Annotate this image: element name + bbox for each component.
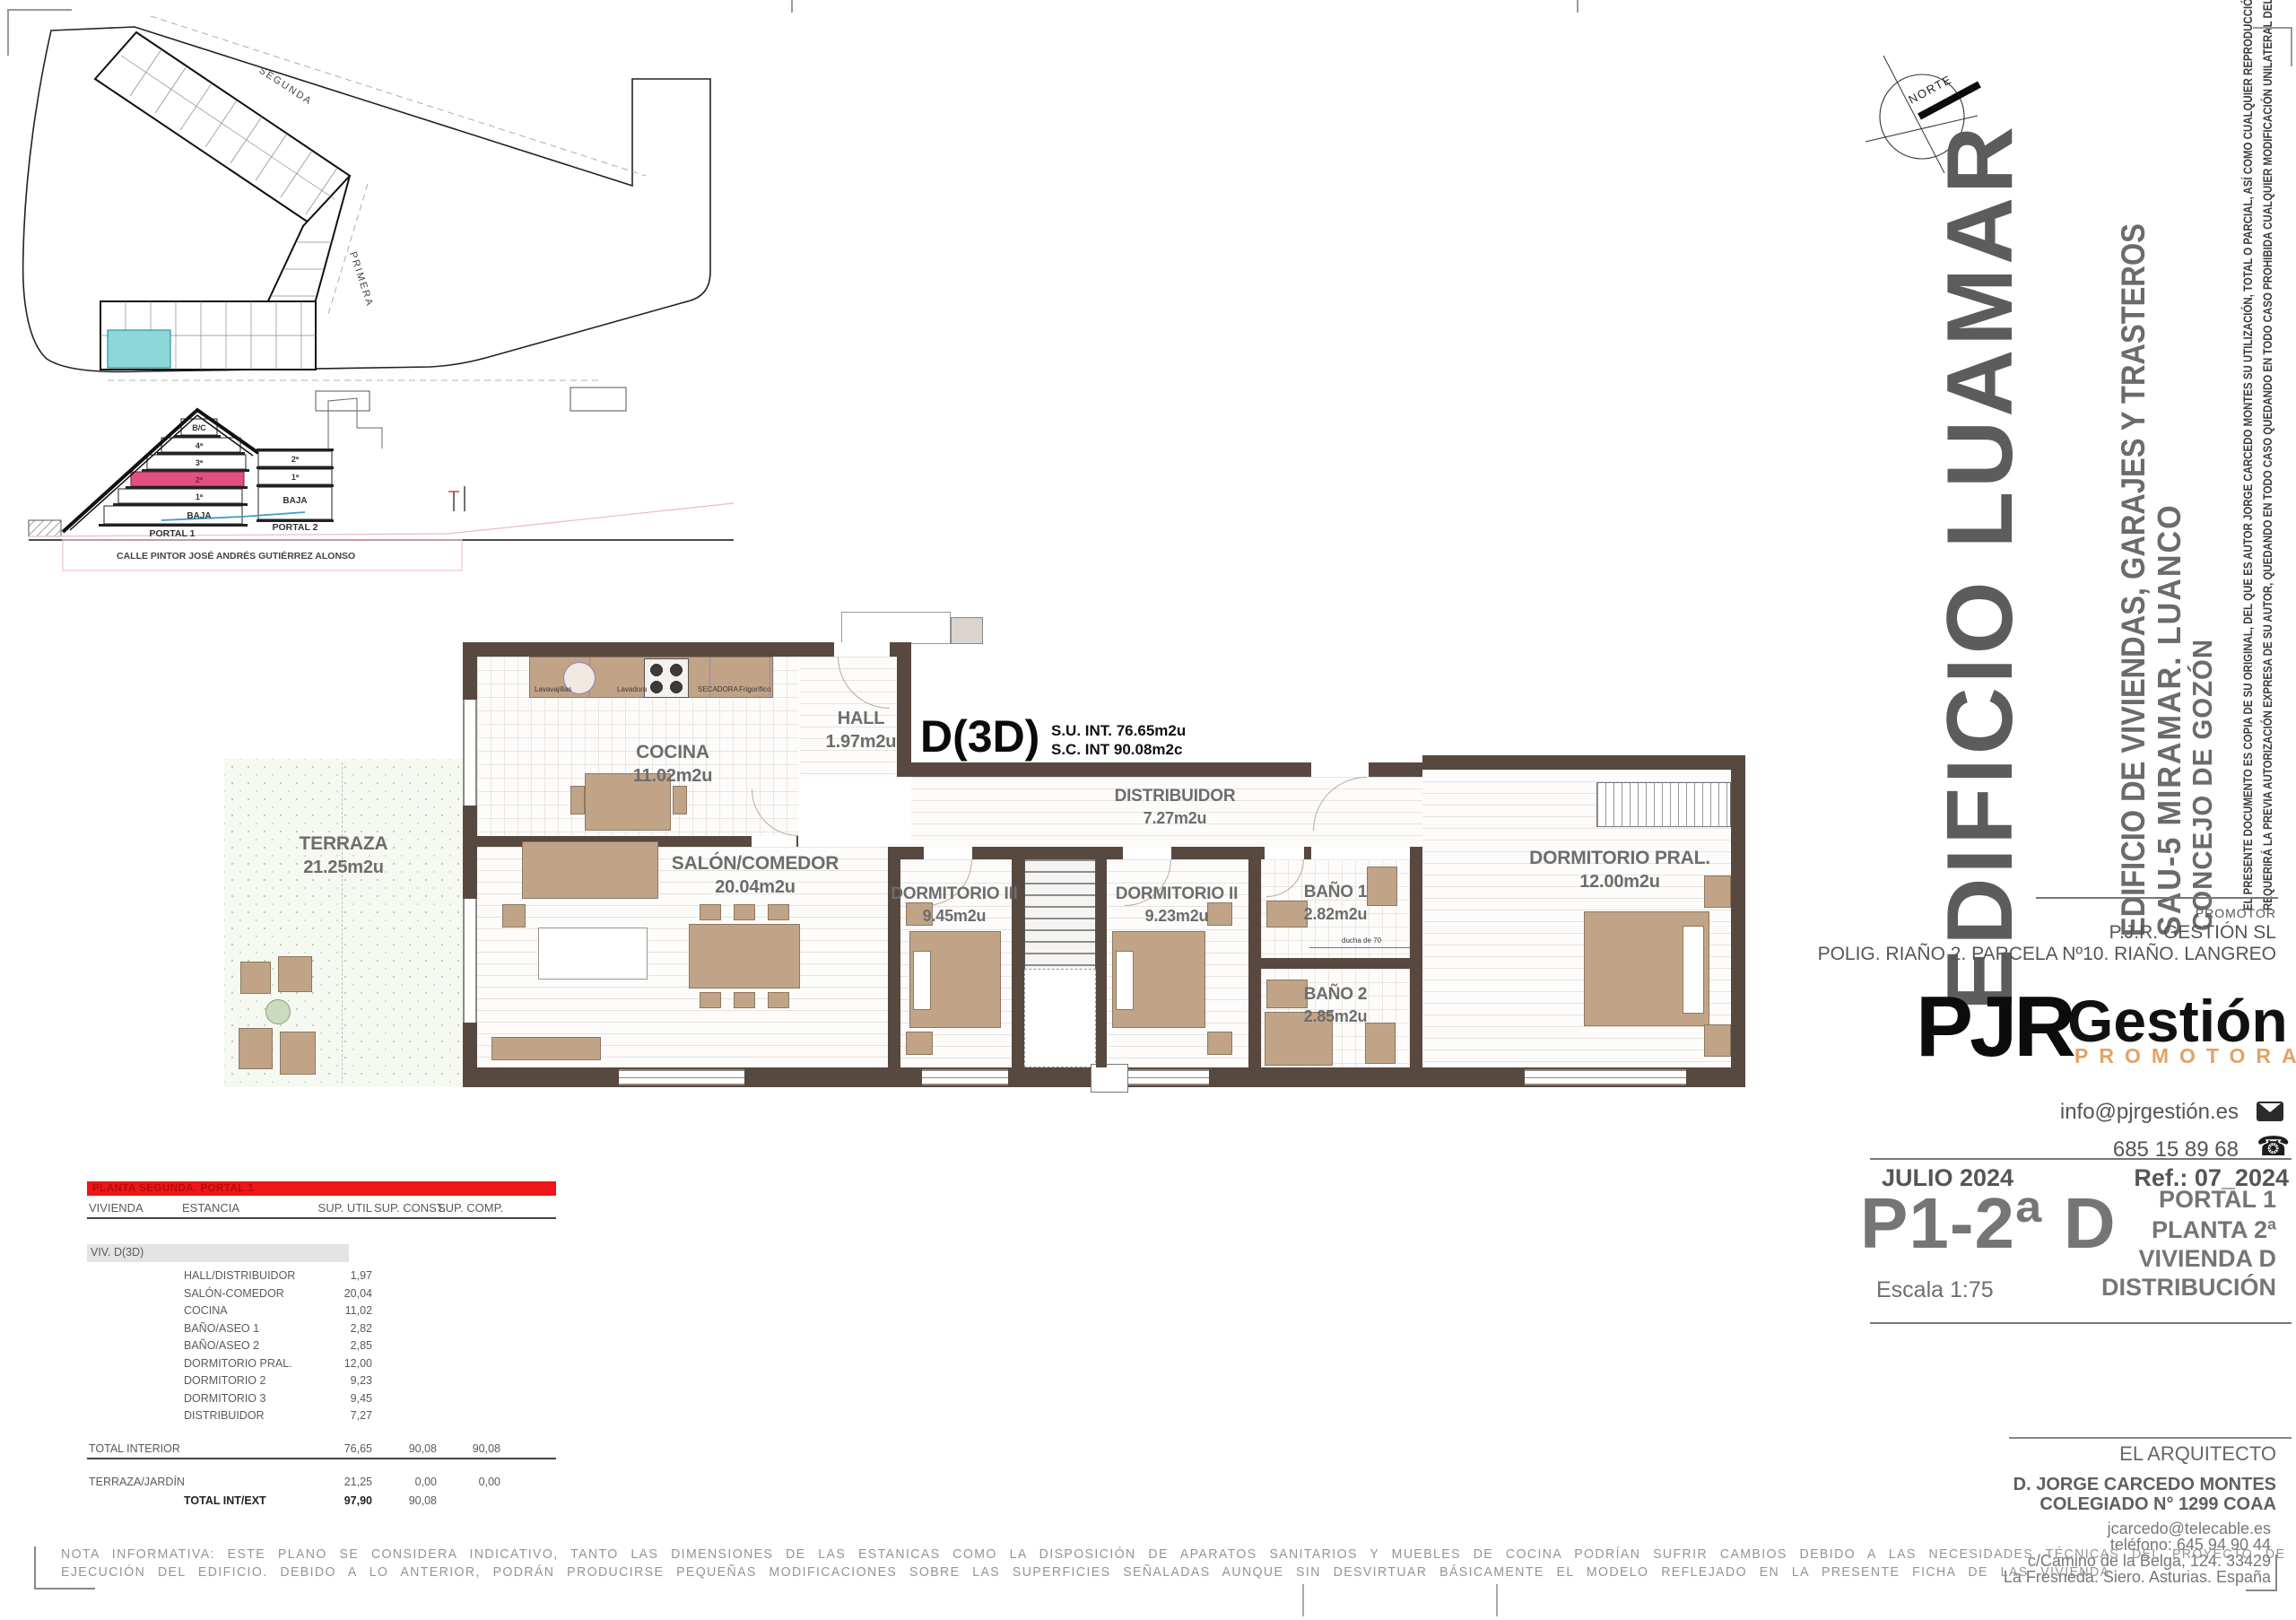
room-area: 20.04m2u bbox=[672, 875, 839, 899]
room-name: COCINA bbox=[636, 742, 709, 762]
row-estancia: DORMITORIO 3 bbox=[184, 1392, 265, 1405]
room-name: SALÓN/COMEDOR bbox=[672, 853, 839, 874]
wall bbox=[463, 1023, 477, 1087]
wall bbox=[1248, 859, 1261, 1067]
room-label-dormpral: DORMITORIO PRAL. 12.00m2u bbox=[1529, 847, 1710, 893]
sheet-scale: Escala 1:75 bbox=[1876, 1277, 1994, 1303]
shaft bbox=[951, 617, 983, 644]
toilet bbox=[1367, 867, 1397, 906]
chair bbox=[768, 904, 789, 920]
row-estancia: SALÓN-COMEDOR bbox=[184, 1287, 284, 1300]
row-util: 2,82 bbox=[309, 1322, 372, 1335]
terraza-row-util: 21,25 bbox=[309, 1476, 372, 1488]
total-interior-const: 90,08 bbox=[374, 1442, 437, 1455]
chair bbox=[700, 992, 721, 1008]
section-label-portal2: PORTAL 2 bbox=[273, 522, 318, 533]
section-label-2: 2ª bbox=[196, 475, 204, 484]
window bbox=[922, 1069, 1008, 1085]
row-util: 1,97 bbox=[309, 1269, 372, 1282]
total-interior-comp: 90,08 bbox=[438, 1442, 500, 1455]
appliance-label: Lavadora bbox=[617, 685, 647, 693]
terraza-planter bbox=[265, 999, 291, 1024]
row-util: 11,02 bbox=[309, 1304, 372, 1317]
room-label-dorm3: DORMITORIO III 9.45m2u bbox=[891, 883, 1017, 928]
email-icon bbox=[2257, 1102, 2283, 1121]
kitchen-door-gap bbox=[752, 836, 796, 847]
row-util: 12,00 bbox=[309, 1357, 372, 1370]
terraza-chair bbox=[280, 1032, 316, 1075]
appliance-label: Lavavajillas bbox=[535, 685, 571, 693]
room-label-salon: SALÓN/COMEDOR 20.04m2u bbox=[672, 852, 839, 899]
dining-table bbox=[689, 924, 800, 989]
room-name: BAÑO 2 bbox=[1304, 985, 1368, 1004]
row-estancia: HALL/DISTRIBUIDOR bbox=[184, 1269, 295, 1282]
total-const: 90,08 bbox=[374, 1494, 437, 1507]
promotor-email: info@pjrgestión.es bbox=[2060, 1100, 2239, 1125]
chair bbox=[734, 992, 755, 1008]
window bbox=[619, 1069, 744, 1085]
total-interior-label: TOTAL INTERIOR bbox=[89, 1442, 180, 1455]
table-band: PLANTA SEGUNDA. PORTAL 1 bbox=[87, 1181, 556, 1196]
section-label-portal1: PORTAL 1 bbox=[150, 528, 196, 539]
pjr-logo: PJR bbox=[1916, 978, 2073, 1076]
pillow bbox=[1116, 951, 1134, 1010]
room-name: DORMITORIO II bbox=[1116, 884, 1238, 903]
terrace-door bbox=[463, 899, 477, 1023]
viv-label: VIV. D(3D) bbox=[91, 1246, 143, 1259]
section-label-3: 3ª bbox=[196, 458, 204, 467]
total-util: 97,90 bbox=[309, 1494, 372, 1507]
room-label-distribuidor: DISTRIBUIDOR 7.27m2u bbox=[1115, 786, 1236, 829]
dorm2-door-gap bbox=[1123, 847, 1171, 859]
terraza-centerline bbox=[342, 762, 343, 1084]
room-name: DISTRIBUIDOR bbox=[1115, 787, 1236, 806]
toilet bbox=[1365, 1023, 1396, 1064]
wardrobe bbox=[1596, 782, 1731, 827]
wall bbox=[1369, 762, 1422, 777]
wall bbox=[1422, 755, 1745, 770]
total-interior-util: 76,65 bbox=[309, 1442, 372, 1455]
chair bbox=[673, 786, 687, 814]
room-label-cocina: COCINA 11.02m2u bbox=[633, 741, 712, 788]
nota-line-1: NOTA INFORMATIVA: ESTE PLANO SE CONSIDER… bbox=[61, 1546, 2285, 1562]
row-util: 2,85 bbox=[309, 1339, 372, 1352]
copyright-disclaimer-1: EL PRESENTE DOCUMENTO ES COPIA DE SU ORI… bbox=[2241, 0, 2255, 910]
sheet-vivienda: VIVIENDA D bbox=[2138, 1245, 2276, 1273]
room-area: 1.97m2u bbox=[826, 730, 897, 753]
row-estancia: DORMITORIO 2 bbox=[184, 1374, 265, 1387]
room-label-hall: HALL 1.97m2u bbox=[826, 707, 897, 753]
section-label-1: 1ª bbox=[196, 492, 204, 501]
row-util: 9,23 bbox=[309, 1374, 372, 1387]
wall bbox=[1261, 958, 1410, 969]
chair bbox=[768, 992, 789, 1008]
row-util: 20,04 bbox=[309, 1287, 372, 1300]
room-area: 21.25m2u bbox=[300, 856, 388, 879]
stairwell bbox=[1024, 859, 1096, 969]
nightstand bbox=[906, 1032, 933, 1055]
promotor-label: PROMOTOR bbox=[2196, 906, 2276, 920]
section-highlight-planta2 bbox=[131, 472, 244, 486]
room-label-bano1: BAÑO 1 2.82m2u bbox=[1304, 881, 1368, 926]
row-util: 7,27 bbox=[309, 1409, 372, 1422]
promotor-name: P.J.R. GESTIÓN SL bbox=[2109, 922, 2276, 944]
pjr-logo-promotora: PROMOTORA bbox=[2074, 1044, 2296, 1068]
chair bbox=[700, 904, 721, 920]
washbasin bbox=[1266, 901, 1308, 928]
sofa bbox=[522, 841, 658, 899]
sheet-planta: PLANTA 2ª bbox=[2152, 1216, 2276, 1244]
sheet-portal: PORTAL 1 bbox=[2159, 1186, 2276, 1214]
sheet-tipo: DISTRIBUCIÓN bbox=[2101, 1274, 2276, 1302]
col-util: SUP. UTIL bbox=[309, 1201, 372, 1215]
building-arm-segunda bbox=[95, 32, 350, 222]
col-estancia: ESTANCIA bbox=[182, 1201, 239, 1215]
surfaces-table: PLANTA SEGUNDA. PORTAL 1 VIVIENDA ESTANC… bbox=[87, 1181, 556, 1558]
pillow bbox=[913, 951, 931, 1010]
wall bbox=[911, 762, 1311, 777]
unit-sc: S.C. INT 90.08m2c bbox=[1051, 740, 1186, 759]
room-name: DORMITORIO III bbox=[891, 884, 1017, 903]
promotor-address: POLIG. RIAÑO 2. PARCELA Nº10. RIAÑO. LAN… bbox=[1818, 944, 2276, 965]
terraza-chair bbox=[240, 962, 271, 994]
side-table bbox=[502, 904, 526, 928]
chair bbox=[734, 904, 755, 920]
stair-footing bbox=[1091, 1064, 1128, 1093]
room-area: 11.02m2u bbox=[633, 764, 712, 788]
stairwell-void bbox=[1024, 969, 1096, 1067]
building-section: B/C 4ª 3ª 2ª 1ª BAJA 2ª 1ª BAJA PORTAL 1… bbox=[27, 386, 735, 592]
coffee-table bbox=[538, 928, 648, 980]
room-area: 2.85m2u bbox=[1304, 1006, 1368, 1028]
site-plan: SEGUNDA PRIMERA bbox=[0, 0, 744, 413]
row-estancia: BAÑO/ASEO 2 bbox=[184, 1339, 259, 1352]
pillow bbox=[1683, 926, 1704, 1014]
appliance-label: SECADORA bbox=[698, 685, 738, 693]
core-outline bbox=[841, 612, 951, 644]
sheet-code: P1-2ª D bbox=[1860, 1182, 2117, 1265]
row-estancia: DORMITORIO PRAL. bbox=[184, 1357, 292, 1370]
plan-sheet: SEGUNDA PRIMERA bbox=[0, 0, 2296, 1620]
terraza-row-comp: 0,00 bbox=[438, 1476, 500, 1488]
room-label-dorm2: DORMITORIO II 9.23m2u bbox=[1116, 883, 1238, 928]
room-label-bano2: BAÑO 2 2.85m2u bbox=[1304, 983, 1368, 1028]
window bbox=[1126, 1069, 1209, 1085]
section-label-baja-right: BAJA bbox=[283, 496, 307, 506]
col-comp: SUP. COMP. bbox=[438, 1201, 500, 1215]
unit-code: D(3D) bbox=[920, 710, 1039, 762]
street-label-primera: PRIMERA bbox=[347, 250, 375, 309]
wall bbox=[463, 849, 477, 899]
section-label-r2: 2ª bbox=[291, 455, 300, 464]
room-name: TERRAZA bbox=[300, 833, 388, 854]
unit-surface: S.U. INT. 76.65m2u S.C. INT 90.08m2c bbox=[1051, 721, 1186, 759]
terraza-row-const: 0,00 bbox=[374, 1476, 437, 1488]
room-area: 9.23m2u bbox=[1116, 905, 1238, 928]
room-area: 7.27m2u bbox=[1115, 807, 1236, 829]
section-street-label: CALLE PINTOR JOSÉ ANDRÉS GUTIÉRREZ ALONS… bbox=[117, 550, 355, 562]
terraza-chair bbox=[239, 1028, 273, 1069]
section-label-bc: B/C bbox=[192, 423, 206, 432]
room-area: 12.00m2u bbox=[1529, 870, 1710, 893]
appliance-label: Frigorífico bbox=[739, 685, 771, 693]
project-location: SAU-5 MIRAMAR. LUANCO bbox=[2151, 503, 2188, 936]
copyright-disclaimer-2: REQUERIRÁ LA PREVIA AUTORIZACIÓN EXPRESA… bbox=[2261, 0, 2274, 910]
architect-colegiado: COLEGIADO N° 1299 COAA bbox=[2039, 1494, 2276, 1515]
project-municipality: CONCEJO DE GOZÓN bbox=[2187, 639, 2219, 931]
room-area: 9.45m2u bbox=[891, 905, 1017, 928]
row-util: 9,45 bbox=[309, 1392, 372, 1405]
room-name: BAÑO 1 bbox=[1304, 883, 1368, 901]
wall bbox=[897, 642, 911, 777]
project-title: EDIFICIO LUAMAR bbox=[1927, 123, 2034, 1011]
hob-icon bbox=[644, 658, 689, 698]
highlighted-unit-d bbox=[108, 330, 170, 368]
entry-door-gap bbox=[834, 642, 890, 657]
nightstand bbox=[1207, 1032, 1232, 1055]
col-const: SUP. CONST. bbox=[374, 1201, 437, 1215]
bano1-door-gap bbox=[1265, 847, 1304, 859]
project-subtitle: EDIFICIO DE VIVIENDAS, GARAJES Y TRASTER… bbox=[2115, 223, 2152, 936]
total-label: TOTAL INT/EXT bbox=[184, 1494, 266, 1507]
section-label-baja-left: BAJA bbox=[187, 511, 211, 521]
room-label-terraza: TERRAZA 21.25m2u bbox=[300, 832, 388, 879]
room-name: HALL bbox=[838, 709, 885, 728]
dorm3-door-gap bbox=[924, 847, 972, 859]
architect-name: D. JORGE CARCEDO MONTES bbox=[2013, 1475, 2276, 1495]
wall bbox=[463, 642, 477, 700]
nota-line-2: EJECUCIÓN DEL EDIFICIO. DEBIDO A LO ANTE… bbox=[61, 1564, 2109, 1580]
shower-line bbox=[1309, 947, 1410, 948]
wall bbox=[1410, 847, 1422, 1067]
phone-icon: ☎ bbox=[2257, 1134, 2290, 1161]
room-area: 2.82m2u bbox=[1304, 903, 1368, 926]
section-label-4: 4ª bbox=[196, 441, 204, 450]
ducha-label: ducha de 70 bbox=[1342, 936, 1381, 945]
sideboard bbox=[491, 1037, 601, 1060]
room-name: DORMITORIO PRAL. bbox=[1529, 848, 1710, 868]
street-label-segunda: SEGUNDA bbox=[257, 65, 314, 107]
nightstand bbox=[1704, 1024, 1731, 1057]
row-estancia: COCINA bbox=[184, 1304, 228, 1317]
row-estancia: BAÑO/ASEO 1 bbox=[184, 1322, 259, 1335]
window bbox=[1525, 1069, 1686, 1085]
terraza-row-label: TERRAZA/JARDÍN bbox=[89, 1476, 185, 1488]
wall bbox=[1096, 859, 1107, 1067]
washbasin bbox=[1266, 980, 1308, 1008]
section-label-r1: 1ª bbox=[291, 473, 300, 482]
architect-label: EL ARQUITECTO bbox=[2119, 1442, 2276, 1466]
unit-su: S.U. INT. 76.65m2u bbox=[1051, 721, 1186, 740]
window bbox=[463, 700, 477, 806]
row-estancia: DISTRIBUIDOR bbox=[184, 1409, 265, 1422]
chair bbox=[570, 786, 585, 814]
wall bbox=[1731, 755, 1745, 1087]
col-vivienda: VIVIENDA bbox=[89, 1201, 143, 1215]
terraza-chair bbox=[278, 956, 312, 992]
